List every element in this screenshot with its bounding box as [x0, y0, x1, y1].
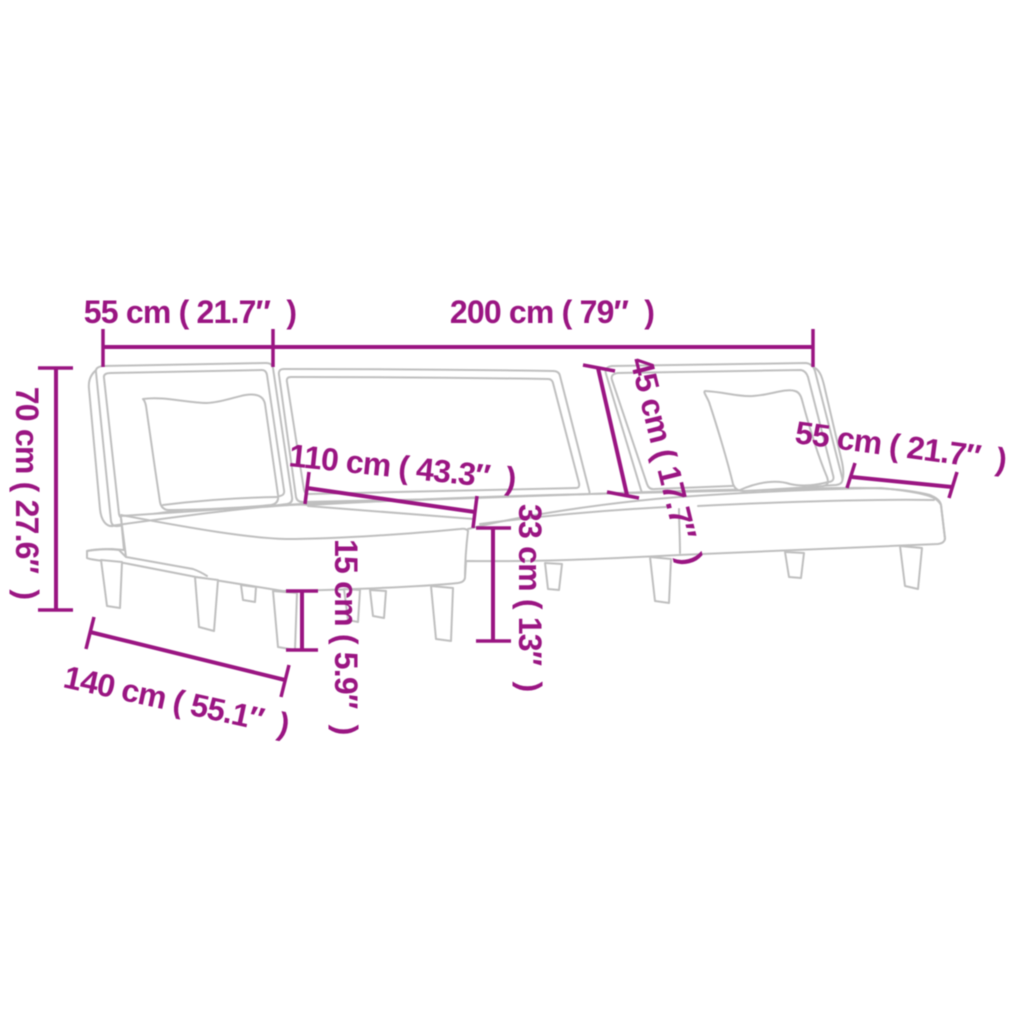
svg-text:70 cm ( 27.6″ ): 70 cm ( 27.6″ ) [9, 387, 45, 600]
svg-text:200 cm ( 79″ ): 200 cm ( 79″ ) [450, 294, 654, 330]
svg-text:55 cm ( 21.7″ ): 55 cm ( 21.7″ ) [84, 294, 297, 330]
svg-text:33 cm ( 13″ ): 33 cm ( 13″ ) [512, 504, 548, 691]
svg-text:15 cm ( 5.9″ ): 15 cm ( 5.9″ ) [328, 539, 364, 735]
